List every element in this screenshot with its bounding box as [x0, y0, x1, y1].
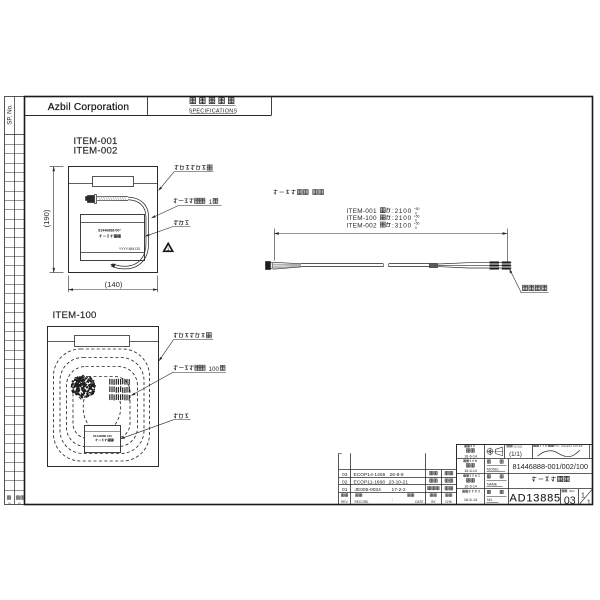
svg-text:01: 01: [342, 487, 348, 493]
svg-text:Azbil Corporation: Azbil Corporation: [48, 102, 130, 113]
svg-text:AD13885: AD13885: [510, 493, 561, 505]
svg-text:1: 1: [209, 199, 213, 206]
svg-text:26-8-8: 26-8-8: [390, 472, 404, 478]
svg-text:CHK.: CHK.: [445, 500, 453, 504]
svg-text:100: 100: [209, 366, 220, 373]
svg-text:81446888-001/002/100: 81446888-001/002/100: [513, 462, 588, 471]
svg-text:SCALE: SCALE: [514, 444, 523, 448]
svg-text:1: 1: [581, 493, 585, 500]
svg-text:03: 03: [342, 472, 348, 478]
svg-text:RECORD: RECORD: [355, 500, 370, 504]
svg-text:JE005-0034: JE005-0034: [355, 487, 382, 493]
svg-text:03: 03: [564, 495, 576, 507]
svg-text:NAME: NAME: [487, 483, 498, 487]
svg-text:YYYY-MM-DD: YYYY-MM-DD: [119, 247, 141, 251]
svg-text::2100: :2100: [392, 208, 412, 215]
svg-text:MODEL: MODEL: [487, 467, 500, 471]
svg-text:ECOP14-1455: ECOP14-1455: [354, 472, 386, 478]
svg-text::: :: [392, 497, 393, 502]
svg-text:17-2-2: 17-2-2: [392, 487, 406, 493]
svg-text:23-10-21: 23-10-21: [389, 479, 409, 485]
svg-text:ITEM-100: ITEM-100: [53, 310, 97, 321]
svg-text:DATE: DATE: [415, 500, 423, 504]
svg-text:ITEM-001: ITEM-001: [347, 208, 377, 215]
svg-text:16-6-14: 16-6-14: [464, 454, 477, 458]
svg-text:81446888-100: 81446888-100: [93, 434, 112, 438]
svg-text:1: 1: [587, 500, 591, 507]
svg-text:ITEM-002: ITEM-002: [347, 222, 377, 229]
svg-text:REV.: REV.: [341, 500, 348, 504]
svg-text:TOL. UNLESS NOTED: TOL. UNLESS NOTED: [554, 445, 583, 448]
svg-text:SP. No.: SP. No.: [6, 104, 13, 125]
svg-text:(1/1): (1/1): [509, 451, 522, 458]
svg-text:(140): (140): [105, 280, 123, 289]
svg-text::2100: :2100: [392, 215, 412, 222]
svg-text:ITEM-100: ITEM-100: [347, 215, 377, 222]
svg-text:0: 0: [415, 226, 417, 230]
svg-text:(190): (190): [42, 209, 51, 227]
svg-text:02: 02: [342, 479, 348, 485]
svg-text:16-6-14: 16-6-14: [464, 485, 477, 489]
svg-text:16-6-14: 16-6-14: [464, 497, 478, 502]
svg-text:ECOP11-1668: ECOP11-1668: [354, 479, 386, 485]
svg-text:NO.: NO.: [487, 498, 493, 502]
svg-text:16-6-14: 16-6-14: [464, 469, 477, 473]
svg-text:REV.: REV.: [570, 490, 576, 493]
svg-text:PG: PG: [8, 503, 11, 505]
svg-text:81446888-00*: 81446888-00*: [98, 228, 121, 232]
svg-text::3100: :3100: [392, 222, 412, 229]
svg-text:ITEM-002: ITEM-002: [74, 145, 118, 156]
